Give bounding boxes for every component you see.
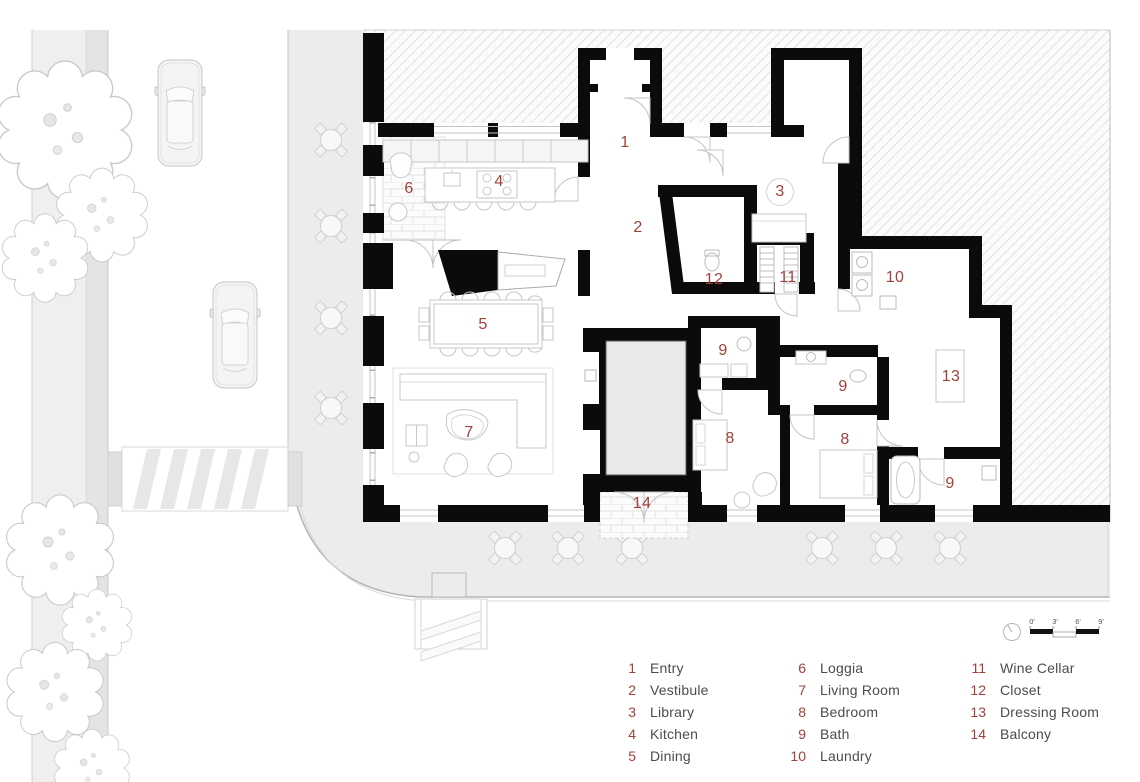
car bbox=[210, 282, 260, 388]
legend-item-number: 9 bbox=[778, 726, 806, 742]
room-label-2: 2 bbox=[633, 220, 642, 236]
crosswalk-left bbox=[108, 447, 302, 511]
legend-item-number: 14 bbox=[958, 726, 986, 742]
legend-item-1: 1Entry bbox=[608, 660, 709, 682]
legend-item-4: 4Kitchen bbox=[608, 726, 709, 748]
scale-bar-segments bbox=[1030, 626, 1099, 637]
room-label-1: 1 bbox=[620, 135, 629, 151]
room-label-8: 8 bbox=[840, 432, 849, 448]
legend-item-11: 11Wine Cellar bbox=[958, 660, 1099, 682]
scale-bar-ticks: 0' 3' 6' 9' bbox=[1029, 617, 1104, 626]
legend-item-12: 12Closet bbox=[958, 682, 1099, 704]
legend-item-number: 12 bbox=[958, 682, 986, 698]
legend-item-label: Vestibule bbox=[650, 682, 709, 698]
legend-column-3: 11Wine Cellar12Closet13Dressing Room14Ba… bbox=[958, 660, 1099, 748]
legend-item-3: 3Library bbox=[608, 704, 709, 726]
legend-item-2: 2Vestibule bbox=[608, 682, 709, 704]
legend-item-number: 6 bbox=[778, 660, 806, 676]
room-label-5: 5 bbox=[478, 317, 487, 333]
legend-item-label: Dining bbox=[650, 748, 691, 764]
legend-item-label: Library bbox=[650, 704, 694, 720]
room-label-9: 9 bbox=[718, 343, 727, 359]
legend-item-number: 3 bbox=[608, 704, 636, 720]
crosswalk-bottom bbox=[415, 599, 487, 661]
room-label-13: 13 bbox=[942, 369, 960, 385]
room-label-3: 3 bbox=[766, 178, 794, 206]
scale-tick: 6' bbox=[1075, 617, 1081, 626]
legend-item-number: 1 bbox=[608, 660, 636, 676]
utility-box bbox=[432, 573, 466, 597]
legend-item-7: 7Living Room bbox=[778, 682, 900, 704]
legend-item-label: Laundry bbox=[820, 748, 872, 764]
legend-item-label: Bath bbox=[820, 726, 850, 742]
room-label-9: 9 bbox=[838, 379, 847, 395]
legend-item-13: 13Dressing Room bbox=[958, 704, 1099, 726]
legend-item-number: 4 bbox=[608, 726, 636, 742]
legend-item-label: Living Room bbox=[820, 682, 900, 698]
room-label-11: 11 bbox=[779, 270, 796, 286]
legend-column-2: 6Loggia7Living Room8Bedroom9Bath10Laundr… bbox=[778, 660, 900, 770]
legend-item-14: 14Balcony bbox=[958, 726, 1099, 748]
legend-item-9: 9Bath bbox=[778, 726, 900, 748]
floor-plan-page: 1234567912111091388914 1Entry2Vestibule3… bbox=[0, 0, 1140, 782]
room-label-8: 8 bbox=[725, 431, 734, 447]
legend-item-number: 5 bbox=[608, 748, 636, 764]
legend-item-label: Balcony bbox=[1000, 726, 1051, 742]
scale-tick: 3' bbox=[1052, 617, 1058, 626]
room-label-12: 12 bbox=[705, 272, 723, 288]
core-niche bbox=[583, 430, 600, 474]
legend-item-label: Dressing Room bbox=[1000, 704, 1099, 720]
legend-item-6: 6Loggia bbox=[778, 660, 900, 682]
legend-item-10: 10Laundry bbox=[778, 748, 900, 770]
legend-item-label: Kitchen bbox=[650, 726, 698, 742]
legend-item-number: 2 bbox=[608, 682, 636, 698]
room-label-9: 9 bbox=[945, 476, 954, 492]
room-label-4: 4 bbox=[494, 174, 503, 190]
room-label-7: 7 bbox=[464, 425, 473, 441]
scale-tick: 9' bbox=[1098, 617, 1104, 626]
room-label-6: 6 bbox=[404, 181, 413, 197]
legend-item-label: Wine Cellar bbox=[1000, 660, 1075, 676]
legend-item-number: 10 bbox=[778, 748, 806, 764]
legend-item-5: 5Dining bbox=[608, 748, 709, 770]
legend-column-1: 1Entry2Vestibule3Library4Kitchen5Dining bbox=[608, 660, 709, 770]
legend: 1Entry2Vestibule3Library4Kitchen5Dining6… bbox=[0, 660, 1140, 782]
legend-item-number: 8 bbox=[778, 704, 806, 720]
legend-item-label: Bedroom bbox=[820, 704, 878, 720]
scale-bar: 0' 3' 6' 9' bbox=[998, 614, 1118, 650]
room-label-14: 14 bbox=[633, 496, 651, 512]
legend-item-number: 13 bbox=[958, 704, 986, 720]
legend-item-number: 7 bbox=[778, 682, 806, 698]
legend-item-8: 8Bedroom bbox=[778, 704, 900, 726]
legend-item-label: Closet bbox=[1000, 682, 1041, 698]
legend-item-label: Loggia bbox=[820, 660, 863, 676]
legend-item-number: 11 bbox=[958, 660, 986, 676]
room-label-10: 10 bbox=[886, 270, 904, 286]
north-indicator bbox=[1004, 624, 1021, 641]
car bbox=[155, 60, 205, 166]
legend-item-label: Entry bbox=[650, 660, 684, 676]
scale-tick: 0' bbox=[1029, 617, 1035, 626]
elevator-shaft bbox=[606, 341, 686, 475]
